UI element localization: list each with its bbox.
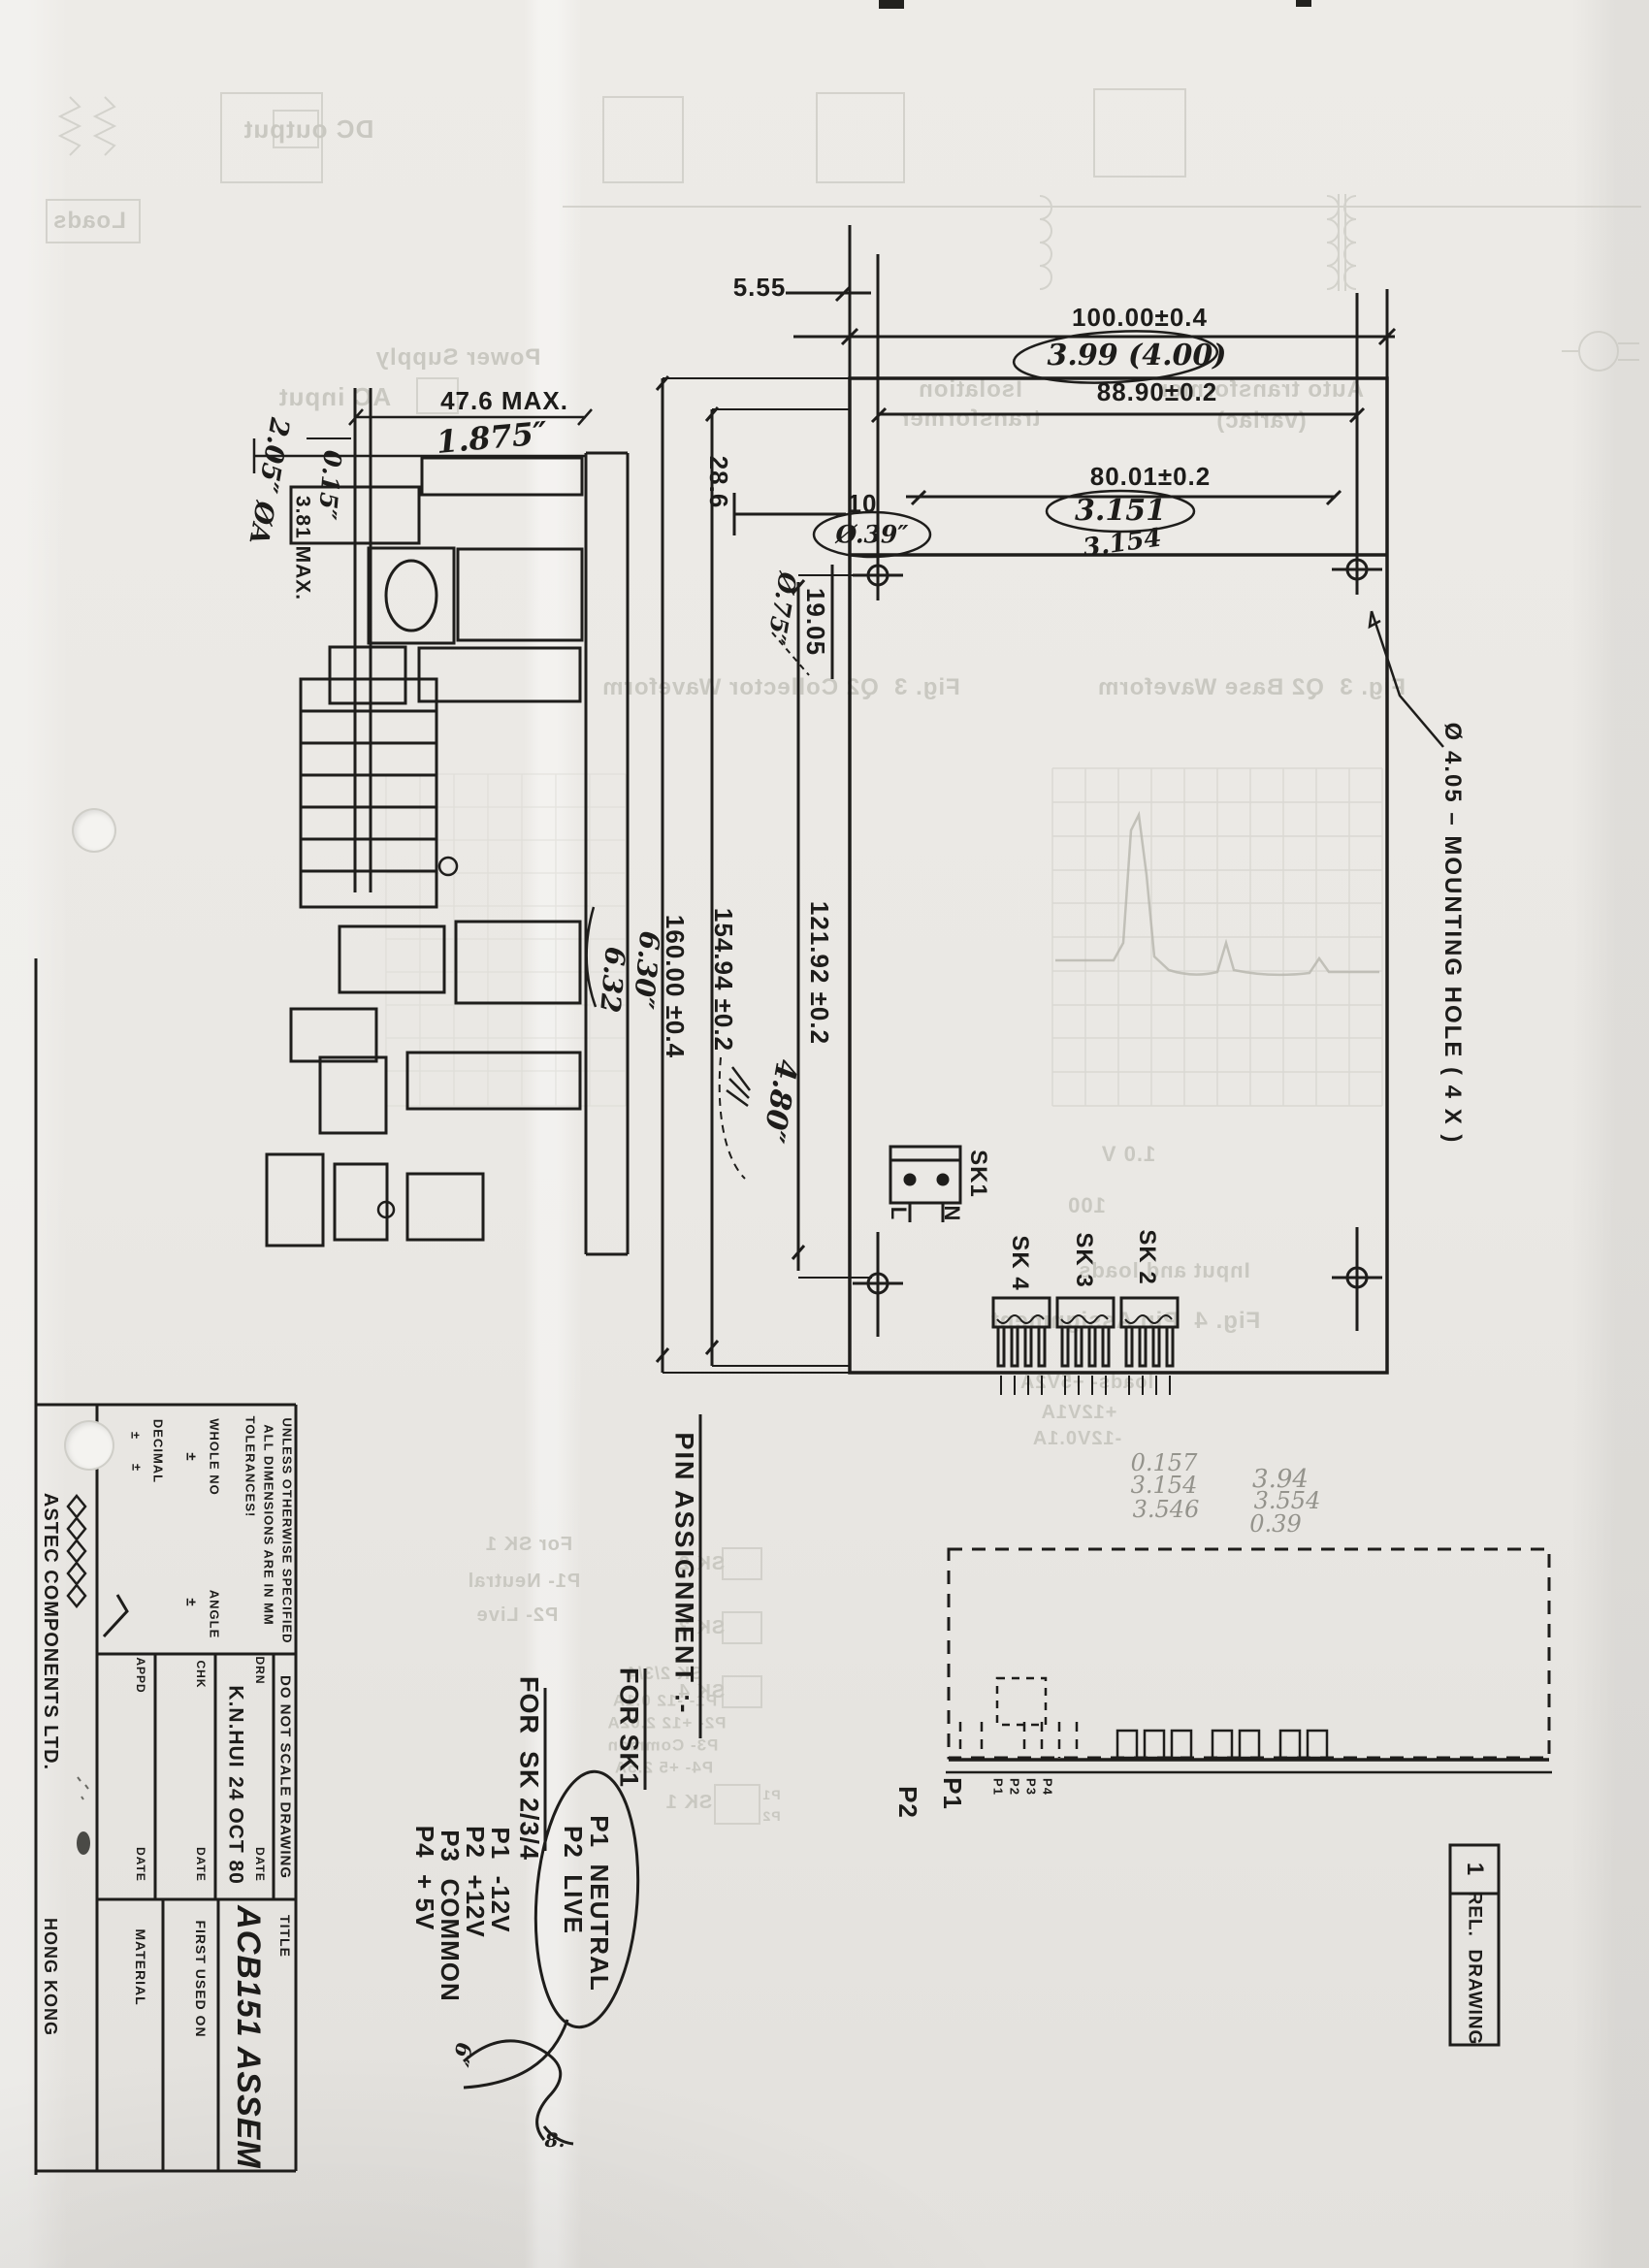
hw-015: 0.15″ <box>314 449 344 521</box>
pa-p2: P2 +12V <box>463 1826 488 1938</box>
tb-spec3: TOLERANCES! <box>244 1416 257 1518</box>
dim-286: 28.6 <box>706 456 731 509</box>
tb-pm-dec1: ± <box>130 1432 143 1440</box>
tb-whole-no: WHOLE NO <box>209 1418 221 1496</box>
pencil-right-3: 0.39 <box>1249 1512 1301 1536</box>
tb-drn-date: 24 OCT 80 <box>226 1776 246 1885</box>
pin-assignment-title: PIN ASSIGNMENT :- <box>671 1432 697 1714</box>
tb-title-value: ACB151 ASSEM <box>232 1905 265 2168</box>
titleblock-pencil-marks <box>77 1777 90 1855</box>
pa-sk234-header: FOR SK 2/3/4 <box>516 1676 542 1861</box>
hw-039: Ø.39″ <box>836 523 909 547</box>
sk4-connector <box>993 1298 1050 1395</box>
company-name: ASTEC COMPONENTS LTD. <box>41 1493 60 1770</box>
pa-p3: P3 COMMON <box>437 1830 463 2002</box>
pa-p1: P1 -12V <box>488 1827 513 1932</box>
label-p1: P1 <box>940 1777 965 1810</box>
tb-app-date-label: DATE <box>135 1847 146 1882</box>
dim-381: 3.81 MAX. <box>293 496 313 600</box>
pencil-right-2: 3.554 <box>1254 1489 1321 1512</box>
scan-artifacts <box>879 0 1311 9</box>
label-sk1-neutral: N <box>941 1206 962 1222</box>
label-pin-p1: P1 <box>992 1778 1005 1796</box>
dim-555: 5.55 <box>733 275 787 300</box>
dim-12192: 121.92 ±0.2 <box>807 901 832 1045</box>
label-pin-p2: P2 <box>1009 1778 1021 1796</box>
side-view-components <box>267 458 582 1246</box>
hw-8: 8. <box>545 2130 566 2150</box>
hw-632: 6.32 <box>596 946 629 1014</box>
tb-drn-label: DRN <box>254 1657 266 1685</box>
mounting-hole-note: Ø 4.05 – MOUNTING HOLE ( 4 X ) <box>1440 723 1464 1145</box>
scanned-engineering-drawing: DC output Loads AC input Power Supply Is… <box>0 0 1649 2268</box>
mounting-hole-leader <box>1370 611 1443 747</box>
label-p2: P2 <box>895 1786 921 1819</box>
tb-app-label: APPD <box>135 1657 146 1693</box>
tb-pm-angle: ± <box>184 1598 199 1606</box>
company-city: HONG KONG <box>42 1918 59 2036</box>
label-sk2: SK 2 <box>1135 1229 1158 1284</box>
dim-8890: 88.90±0.2 <box>1097 379 1217 405</box>
dim-1905: 19.05 <box>803 588 828 656</box>
pencil-left-2: 3.154 <box>1131 1474 1198 1497</box>
label-sk1: SK1 <box>966 1150 989 1198</box>
tb-material: MATERIAL <box>134 1928 147 2005</box>
label-sk4: SK 4 <box>1008 1235 1031 1290</box>
tb-do-not-scale: DO NOT SCALE DRAWING <box>278 1675 293 1879</box>
label-sk3: SK 3 <box>1072 1232 1095 1287</box>
tb-first-used: FIRST USED ON <box>194 1920 208 2037</box>
rev-number: 1 <box>1463 1863 1486 1876</box>
punch-hole-top <box>74 810 114 851</box>
hw-1875: 1.875″ <box>436 417 549 458</box>
tb-drn-date-label: DATE <box>254 1847 266 1882</box>
hw-3151: 3.151 <box>1075 497 1166 526</box>
dim-board-width: 100.00±0.4 <box>1072 305 1208 330</box>
dim-476: 47.6 MAX. <box>440 388 568 413</box>
sk2-connector <box>1121 1298 1178 1395</box>
pa-sk1-header: FOR SK1 <box>616 1668 642 1788</box>
pa-sk1-p1: P1 NEUTRAL <box>587 1815 612 1991</box>
tb-pm-whole: ± <box>184 1452 199 1461</box>
punch-hole-bottom <box>66 1422 113 1469</box>
hw-630: 6.30″ <box>630 930 663 1011</box>
tb-title-label: TITLE <box>278 1915 292 1958</box>
dim-15494: 154.94 ±0.2 <box>711 908 736 1052</box>
mounting-holes <box>853 544 1382 1309</box>
dim-16000: 160.00 ±0.4 <box>663 915 688 1058</box>
pin-assignment-marks <box>464 1414 700 2144</box>
tb-chk-label: CHK <box>195 1661 207 1689</box>
rev-label: REL. DRAWING <box>1466 1892 1484 2046</box>
label-pin-p3: P3 <box>1025 1778 1038 1796</box>
tb-angle: ANGLE <box>209 1590 221 1639</box>
pa-sk1-p2: P2 LIVE <box>561 1826 586 1934</box>
tb-drn-name: K.N.HUI <box>226 1685 246 1767</box>
hw-width-inches: 3.99 (4.00) <box>1048 341 1227 371</box>
pencil-left-3: 3.546 <box>1133 1498 1200 1521</box>
tb-chk-date-label: DATE <box>195 1847 207 1882</box>
hw-6: 6″ <box>449 2041 474 2069</box>
label-sk1-live: L <box>888 1207 909 1220</box>
sk3-connector <box>1057 1298 1114 1395</box>
label-pin-p4: P4 <box>1042 1778 1054 1796</box>
dim-10: 10 <box>848 491 878 516</box>
pa-p4: P4 + 5V <box>412 1826 437 1930</box>
bottom-edge-view <box>946 1549 1552 1772</box>
dim-8001: 80.01±0.2 <box>1090 464 1211 489</box>
tb-spec1: UNLESS OTHERWISE SPECIFIED <box>281 1417 294 1643</box>
tb-pm-dec2: ± <box>131 1464 144 1472</box>
dimension-lines-top <box>657 225 1395 1373</box>
company-logo-diamonds <box>68 1496 85 1606</box>
tb-spec2: ALL DIMENSIONS ARE IN MM <box>263 1424 275 1625</box>
tb-decimal: DECIMAL <box>152 1419 165 1483</box>
